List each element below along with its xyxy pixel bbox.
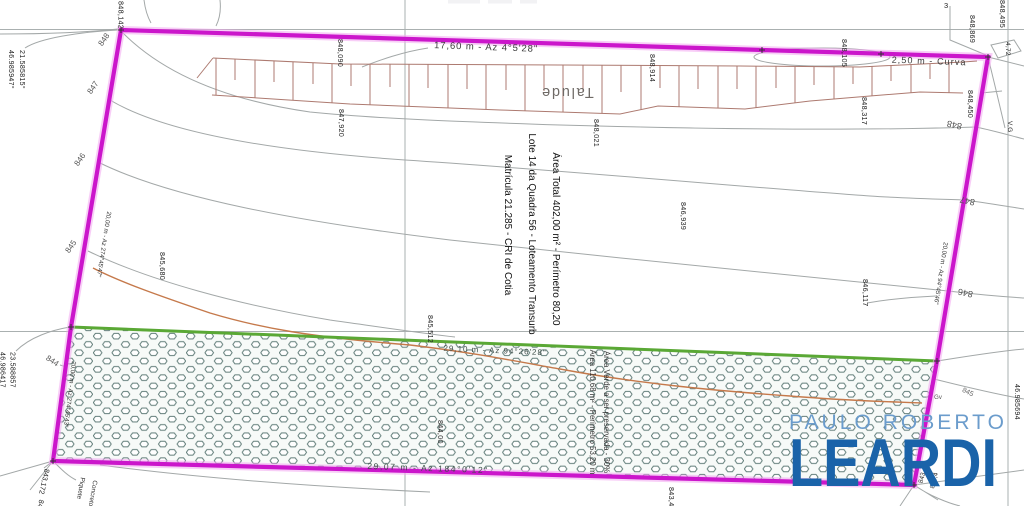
svg-text:845,680: 845,680 — [158, 252, 167, 280]
svg-text:848,869: 848,869 — [968, 15, 977, 43]
svg-text:Área Verde a ser preservada -: Área Verde a ser preservada - 30% — [602, 351, 611, 473]
svg-text:Talude: Talude — [540, 84, 594, 100]
svg-text:Gv: Gv — [934, 395, 942, 401]
svg-text:3: 3 — [944, 1, 948, 10]
svg-text:4,72: 4,72 — [1004, 42, 1011, 56]
svg-text:848,914: 848,914 — [648, 54, 657, 82]
svg-text:843,4: 843,4 — [667, 487, 676, 506]
svg-text:847,920: 847,920 — [337, 109, 346, 137]
svg-text:846,117: 846,117 — [861, 279, 870, 307]
svg-text:848,495: 848,495 — [998, 0, 1007, 28]
svg-text:LEARDI: LEARDI — [789, 425, 997, 501]
svg-text:848,105: 848,105 — [840, 39, 849, 67]
svg-text:23.588857: 23.588857 — [9, 352, 16, 388]
svg-text:848,317: 848,317 — [860, 97, 869, 125]
svg-text:846,939: 846,939 — [679, 202, 688, 230]
svg-text:46.986417: 46.986417 — [0, 352, 6, 388]
svg-text:Lote 14 da Quadra 56 - Loteame: Lote 14 da Quadra 56 - Loteamento Transu… — [526, 133, 537, 335]
svg-text:21.585815°: 21.585815° — [18, 50, 26, 89]
svg-text:848,090: 848,090 — [336, 39, 345, 67]
svg-text:46.985947°: 46.985947° — [7, 50, 15, 89]
svg-text:Área Total 402,00 m² - Perímet: Área Total 402,00 m² - Perímetro 80,20 — [550, 152, 563, 326]
svg-text:46.985694: 46.985694 — [1013, 384, 1020, 420]
svg-text:Matrícula 21.285 - CRI de Coti: Matrícula 21.285 - CRI de Cotia — [502, 155, 513, 296]
svg-text:848,142: 848,142 — [117, 1, 126, 29]
svg-text:848,021: 848,021 — [592, 119, 601, 147]
svg-text:845,512: 845,512 — [426, 315, 435, 343]
svg-text:V,G: V,G — [1006, 121, 1013, 133]
svg-text:844,00: 844,00 — [436, 420, 445, 444]
svg-text:Área 110,68 m² - Perímetro 53,: Área 110,68 m² - Perímetro 53,20 m — [588, 350, 597, 475]
svg-text:848,450: 848,450 — [966, 90, 975, 118]
